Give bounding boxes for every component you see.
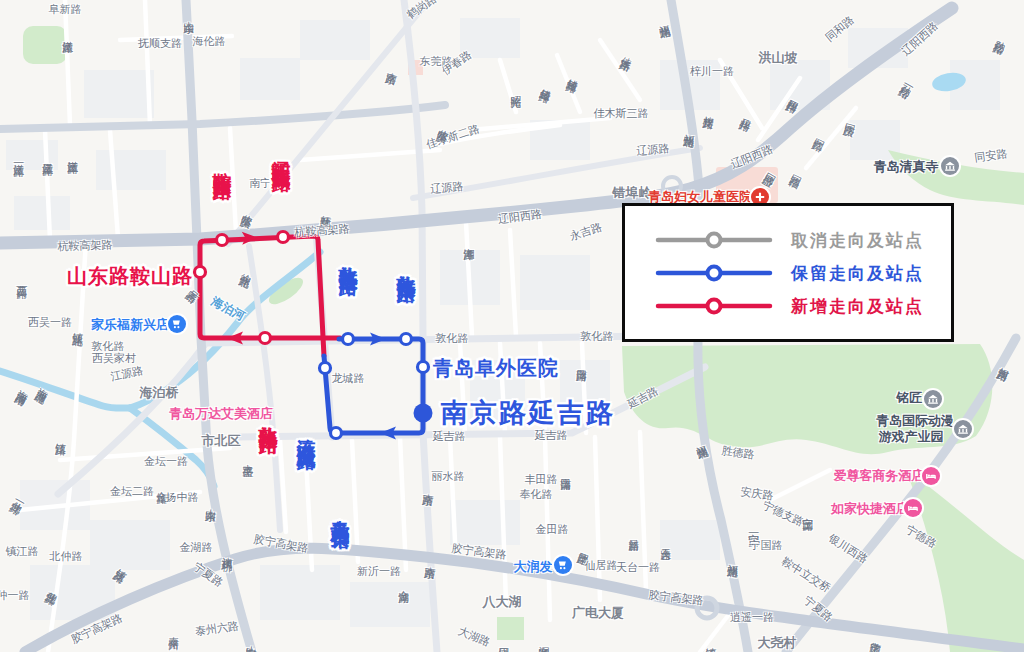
road-label: 金湖路 [397, 583, 409, 586]
legend-item: 保留走向及站点 [653, 262, 924, 284]
road-label: 北仲三路 [50, 582, 62, 591]
road-label: 盐田路 [581, 543, 593, 550]
road-label: 镇江北路 [72, 324, 84, 329]
road-label: 梓川一路 [690, 66, 734, 78]
road-label: 敦化路 [436, 333, 469, 345]
road-label: 金坛二路 [110, 486, 154, 498]
road-label: 梓川二路 [743, 108, 755, 116]
route-label: 山东路鞍山路 [67, 263, 193, 290]
road-label: 山东路 [182, 13, 194, 16]
legend: 取消走向及站点保留走向及站点新增走向及站点 [622, 203, 954, 342]
route-label: 青岛市档案馆 [327, 504, 353, 516]
poi-label: 游戏产业园 [879, 430, 944, 444]
road-label: 丰盛路 [241, 456, 253, 459]
station-marker [418, 362, 429, 373]
road-label: 梓川支路 [704, 106, 716, 112]
road-label: 嫩江三路 [66, 152, 78, 156]
route-label: 敦化路连云港路 [335, 250, 361, 264]
road-label: 辽源路 [636, 143, 670, 157]
road-label: 错埠岭三路 [570, 69, 583, 78]
road-label: 吴石路 [195, 281, 206, 291]
road-label: 抚顺支路 [138, 38, 182, 50]
station-marker [195, 267, 206, 278]
road-label: 银川西路 [826, 532, 869, 565]
legend-item-label: 保留走向及站点 [791, 262, 924, 285]
road-label: 丽水路 [432, 471, 465, 483]
road-label: 劲松一路 [905, 75, 917, 84]
station-marker [217, 235, 228, 246]
road-label: 梓川四路 [791, 90, 803, 99]
road-label: 金田路 [536, 524, 569, 536]
road-label: 福州北路 [727, 555, 739, 560]
legend-item-label: 新增走向及站点 [791, 295, 924, 318]
poi-label: 青岛清真寺 [874, 160, 939, 174]
route-direction-arrow [242, 231, 258, 245]
road-label: 胶宁高架路 [648, 589, 704, 606]
road-label: 山东路 [205, 500, 217, 504]
road-label: 泰州六路 [194, 620, 239, 638]
cart-icon [554, 556, 572, 574]
road-label: 杭鞍高架路 [294, 223, 350, 238]
route-label: 敦化路南京路 [393, 259, 419, 271]
cart-icon [168, 315, 186, 333]
route-direction-arrow [380, 427, 396, 440]
road-label: 哈尔滨路 [244, 204, 256, 211]
station-marker [331, 428, 342, 439]
road-label: 镇江支路 [121, 560, 133, 570]
poi-label: 大润发 [514, 560, 553, 574]
road-label: 南宁路 [250, 178, 283, 190]
route-line [200, 236, 340, 356]
landmark-icon [924, 390, 942, 408]
road-label: 扬中路 [166, 492, 199, 504]
road-label: 永吉路 [569, 221, 604, 242]
road-label: 天台一路 [616, 562, 660, 574]
station-marker [401, 334, 412, 345]
road-label: 西吴家村 [92, 353, 136, 365]
terminus-dot [414, 404, 433, 423]
road-label: 山东路 [246, 637, 258, 642]
hotel-icon [922, 467, 940, 485]
station-marker [343, 334, 354, 345]
road-label: 延吉路 [433, 431, 466, 443]
road-label: 胶宁高架路 [70, 612, 125, 646]
road-label: 阜新路 [49, 4, 82, 16]
route-label: 连云港路龙城路 [293, 424, 319, 438]
road-label: 逍遥一路 [730, 612, 774, 624]
road-label: 新昌路 [627, 531, 639, 534]
road-label: 海泊河南路 [21, 381, 34, 391]
route-direction-arrow [370, 333, 386, 346]
road-label: 广电大厦 [572, 606, 624, 620]
road-label: 北仲路 [50, 551, 83, 563]
road-label: 同庆路 [846, 114, 858, 120]
road-label: 错埠岭 [613, 186, 652, 200]
hotel-icon [904, 499, 922, 517]
road-label: 敦化路 [581, 331, 614, 343]
road-label: 佳木斯路 [623, 47, 635, 54]
road-label: 镇江路 [6, 546, 39, 558]
road-label: 宁德支路 [761, 499, 806, 528]
road-label: 澳柯玛桥 [221, 549, 233, 554]
station-marker [260, 333, 271, 344]
poi-label: 青岛妇女儿童医院 [648, 190, 752, 204]
road-label: 昭光路 [509, 87, 521, 90]
road-label: 嫩江二路 [41, 154, 53, 158]
road-label: 仙居路 [585, 560, 618, 572]
road-label: 蒲田路 [576, 360, 588, 364]
road-label: 劲松三路 [997, 31, 1009, 39]
road-label: 福州北路 [691, 435, 703, 442]
road-label: 延吉路 [535, 430, 568, 442]
road-label: 金湖路 [180, 542, 213, 554]
road-label: 镇江南路 [704, 639, 716, 643]
road-label: 宁德路 [872, 632, 884, 638]
route-label: 南京路延吉路 [441, 395, 615, 431]
road-label: 同仁路 [817, 129, 829, 137]
poi-label: 铭匠 [896, 391, 922, 405]
road-label: 宁国一路 [747, 525, 759, 529]
road-label: 宁夏路 [801, 594, 834, 623]
road-label: 镇江路 [55, 434, 67, 438]
road-label: 同盛路 [769, 164, 780, 172]
road-label: 福州北路 [684, 124, 696, 130]
legend-item-label: 取消走向及站点 [791, 229, 924, 252]
road-label: 辽源路 [430, 181, 464, 195]
road-label: 海伦路 [193, 36, 226, 48]
road-label: 佳木斯二路 [425, 123, 481, 151]
road-label: 丰田路 [525, 474, 558, 486]
road-label: 杭鞍高架路 [57, 239, 112, 252]
road-label: 错埠岭二路 [543, 79, 556, 88]
road-label: 洞庭湖路 [537, 637, 549, 641]
road-label: 宁国三路 [801, 509, 813, 513]
road-label: 海泊桥 [140, 386, 179, 400]
road-label: 胶宁高架路 [451, 543, 507, 561]
landmark-icon [954, 420, 972, 438]
road-label: 洪山坡 [759, 51, 798, 65]
road-label: 嫩江路 [61, 33, 73, 36]
road-label: 辽阳西路 [497, 209, 542, 226]
road-label: 天台路 [659, 540, 671, 543]
road-label: 泰州路 [167, 629, 179, 632]
road-label: 同和路 [824, 14, 857, 44]
station-marker [278, 232, 289, 243]
route-line [324, 339, 423, 433]
road-label: 南京路 [388, 62, 400, 68]
road-label: 银川西路 [1002, 358, 1014, 367]
road-label: 金坛路 [155, 484, 167, 487]
road-label: 八大湖 [483, 595, 522, 609]
route-direction-arrow [227, 332, 243, 345]
road-label: 奉化路 [520, 489, 553, 501]
road-label: 金坛一路 [144, 456, 188, 468]
route-label: 鞍山路山东路 [209, 156, 235, 168]
road-label: 龙城路 [332, 373, 365, 385]
road-label: 嫩江一路 [12, 155, 24, 159]
road-label: 鞍中立交桥 [780, 556, 833, 595]
poi-label: 青岛国际动漫 [876, 414, 954, 428]
road-label: 大尧村 [758, 636, 797, 650]
road-label: 蒲田路 [559, 470, 571, 473]
route-label: 敦化路徐州路 [255, 410, 281, 422]
road-label: 福州北路 [655, 15, 667, 21]
road-label: 敦化路 [92, 341, 125, 353]
road-label: 湘潭路 [462, 240, 474, 243]
poi-label: 如家快捷酒店 [831, 502, 909, 516]
road-label: 伊春路 [440, 49, 474, 77]
road-label: 仲一路 [0, 590, 30, 602]
road-label: 辽阳西路 [729, 143, 774, 170]
poi-label: 家乐福新兴店 [91, 318, 169, 332]
map-canvas[interactable]: 阜新路嫩江路山东路抚顺支路海伦路鹤岗路福州北路劲松三路同和路辽阳西路梓川一路洪山… [0, 0, 1024, 652]
poi-label: 爱尊客商务酒店 [834, 469, 925, 483]
road-label: 南京路 [425, 557, 437, 562]
road-label: 胶宁高架路 [253, 534, 309, 555]
legend-item: 取消走向及站点 [653, 229, 924, 251]
legend-line-sample [653, 262, 775, 284]
road-label: 辽阳西路 [900, 20, 940, 58]
road-label: 胜德路 [721, 445, 755, 461]
route-label: 辽阳西路抚顺路 [268, 146, 294, 160]
road-label: 市北区 [202, 434, 241, 448]
road-label: 海泊河北路 [41, 379, 54, 389]
road-label: 佳木斯三路 [594, 108, 649, 120]
route-label: 青岛阜外医院 [433, 355, 559, 382]
road-label: 鹤岗路 [405, 0, 439, 21]
station-marker [320, 363, 331, 374]
road-label: 江源路 [110, 365, 145, 383]
road-label: 宁夏路 [191, 561, 225, 589]
road-label: 宁德路 [904, 524, 938, 550]
road-label: 南京路 [423, 484, 435, 489]
road-label: 延吉路 [626, 385, 661, 411]
road-label: 抚顺路 [321, 207, 333, 212]
road-label: 海泊河 [209, 295, 247, 323]
road-label: 宁国路 [750, 540, 783, 552]
road-label: 新沂一路 [357, 566, 401, 578]
road-label: 周口路 [497, 640, 509, 643]
road-label: 同安路 [974, 148, 1008, 164]
road-label: 北仲一路 [16, 491, 28, 500]
legend-item: 新增走向及站点 [653, 295, 924, 317]
legend-line-sample [653, 295, 775, 317]
landmark-icon [941, 157, 959, 175]
road-label: 西吴二路 [15, 277, 27, 281]
road-label: 徐州北路 [243, 264, 255, 272]
road-label: 大湖路 [457, 625, 492, 648]
road-label: 西吴一路 [28, 317, 72, 329]
legend-line-sample [653, 229, 775, 251]
road-label: 哈尔滨路 [440, 119, 452, 126]
road-label: 同福路 [794, 165, 806, 173]
